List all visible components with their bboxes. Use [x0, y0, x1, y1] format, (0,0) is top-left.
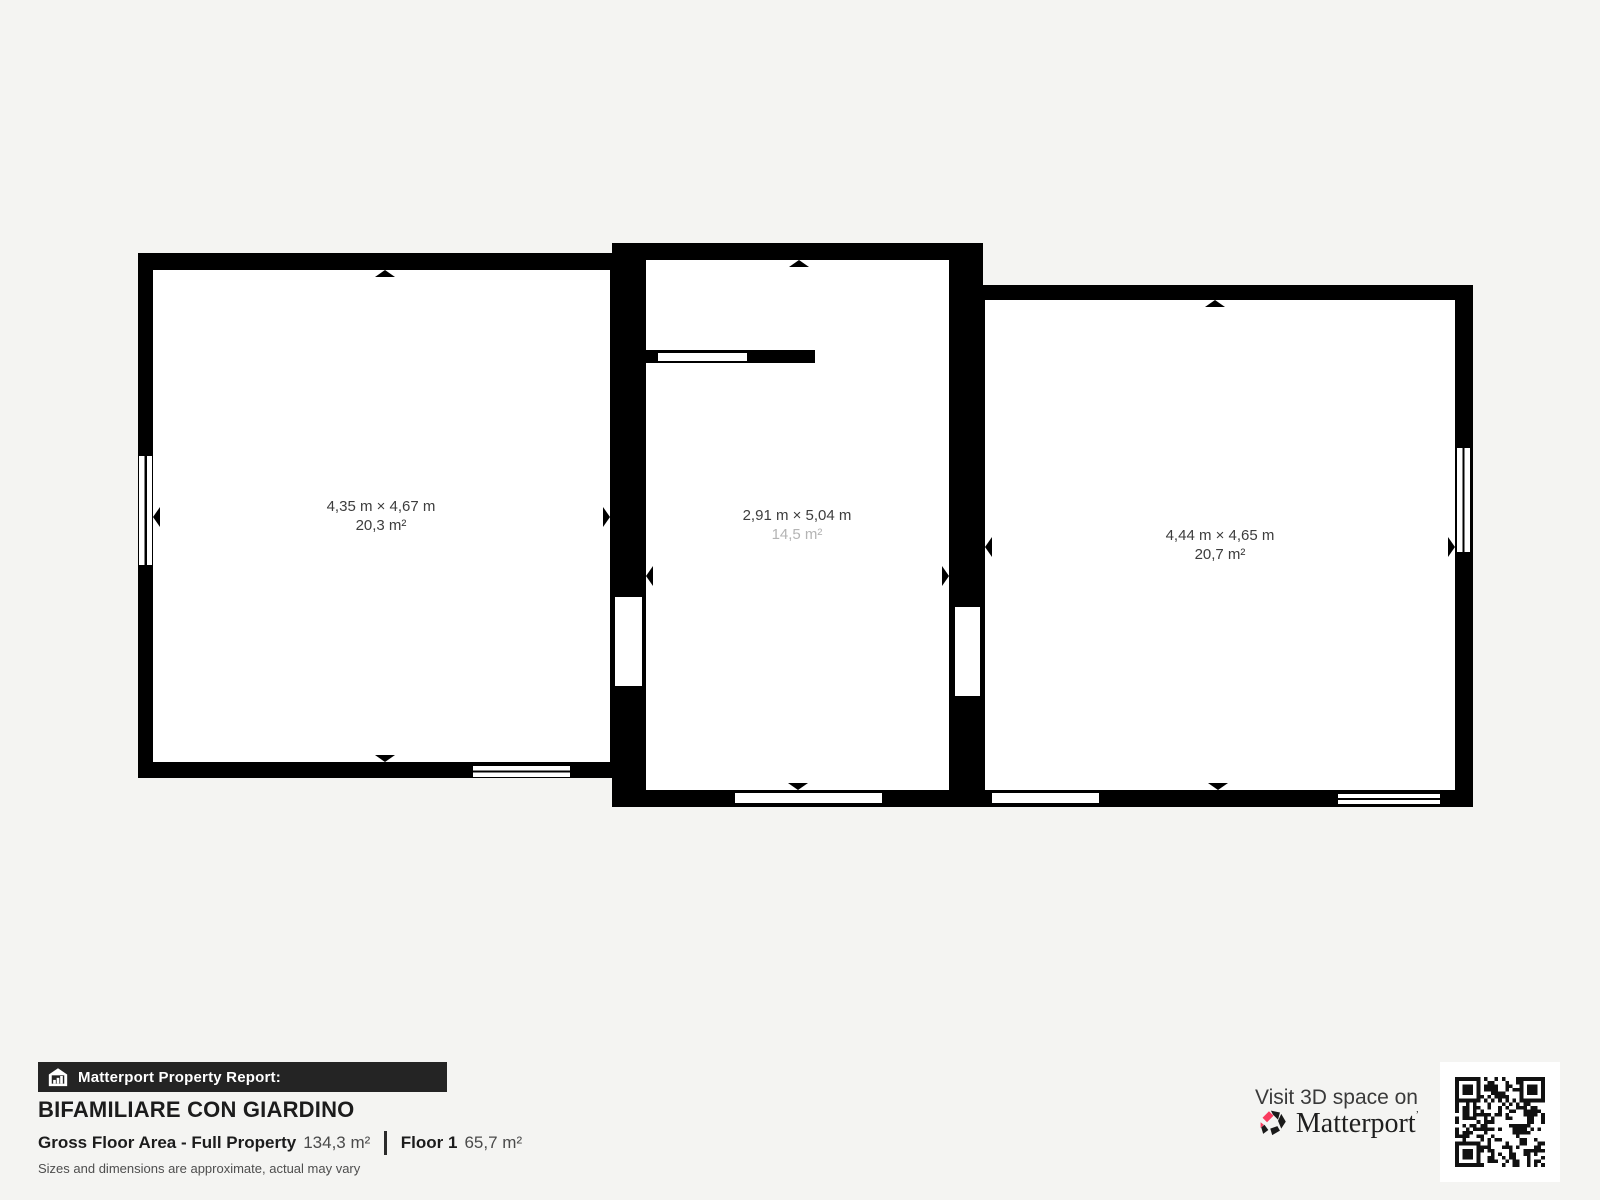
room-middle-area: 14,5 m²: [743, 525, 852, 544]
matterport-wordmark: Matterport’: [1296, 1110, 1419, 1138]
size-disclaimer: Sizes and dimensions are approximate, ac…: [38, 1161, 360, 1176]
floor-value: 65,7 m²: [464, 1133, 522, 1153]
room-right-label: 4,44 m × 4,65 m 20,7 m²: [1166, 526, 1275, 564]
qr-code[interactable]: [1440, 1062, 1560, 1182]
door-right-bottom: [992, 793, 1099, 803]
matterport-floorplan-report: 4,35 m × 4,67 m 20,3 m² 2,91 m × 5,04 m …: [0, 0, 1600, 1200]
house-bars-icon: [48, 1067, 68, 1087]
floor-area-info: Gross Floor Area - Full Property 134,3 m…: [38, 1131, 522, 1155]
gross-floor-area-label: Gross Floor Area - Full Property: [38, 1133, 296, 1153]
info-divider: [384, 1131, 387, 1155]
room-right-dimensions: 4,44 m × 4,65 m: [1166, 527, 1275, 544]
room-middle-dimensions: 2,91 m × 5,04 m: [743, 507, 852, 524]
door-left-to-middle: [615, 597, 642, 686]
interior-wall-opening: [658, 353, 747, 361]
qr-code-pattern: [1448, 1070, 1552, 1174]
visit-3d-label: Visit 3D space on: [1255, 1086, 1418, 1110]
room-left-dimensions: 4,35 m × 4,67 m: [327, 498, 436, 515]
gross-floor-area-value: 134,3 m²: [303, 1133, 370, 1153]
floorplan-drawing: [0, 0, 1600, 1200]
property-name: BIFAMILIARE CON GIARDINO: [38, 1097, 354, 1123]
door-middle-bottom: [735, 793, 882, 803]
room-left-area: 20,3 m²: [327, 516, 436, 535]
matterport-logo-link[interactable]: Matterport’: [1258, 1108, 1419, 1139]
report-banner-label: Matterport Property Report:: [78, 1069, 281, 1086]
report-banner: Matterport Property Report:: [38, 1062, 447, 1092]
room-middle-label: 2,91 m × 5,04 m 14,5 m²: [743, 506, 852, 544]
door-middle-to-right: [955, 607, 980, 696]
matterport-pinwheel-icon: [1258, 1108, 1289, 1139]
floor-label: Floor 1: [401, 1133, 458, 1153]
room-right-area: 20,7 m²: [1166, 545, 1275, 564]
room-left-label: 4,35 m × 4,67 m 20,3 m²: [327, 497, 436, 535]
